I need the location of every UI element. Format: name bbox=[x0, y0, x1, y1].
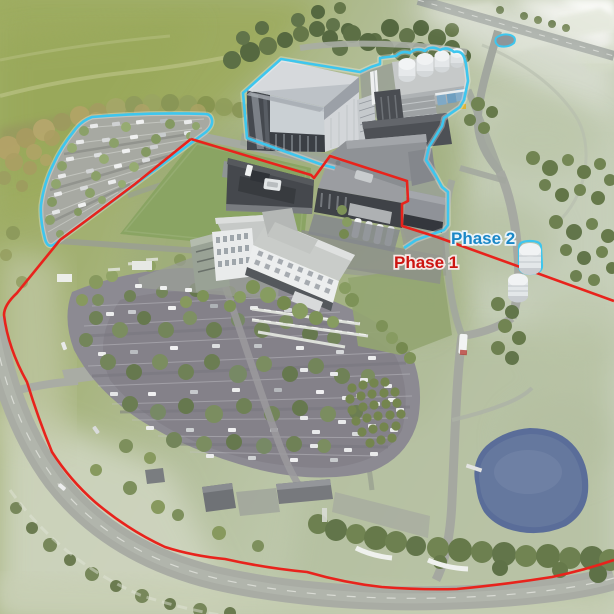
svg-text:Phase 2: Phase 2 bbox=[451, 229, 515, 248]
svg-text:Phase 1: Phase 1 bbox=[394, 253, 458, 272]
